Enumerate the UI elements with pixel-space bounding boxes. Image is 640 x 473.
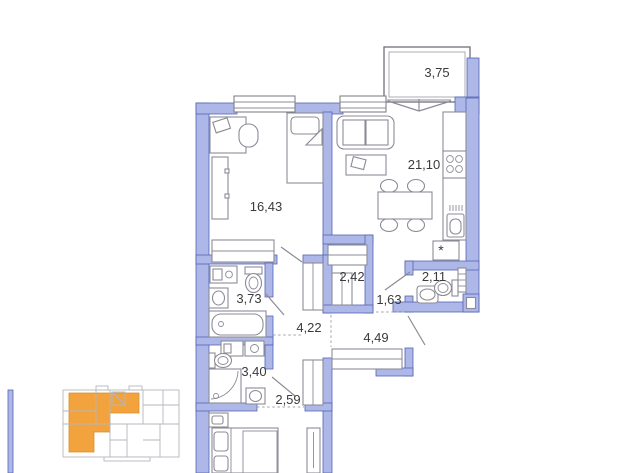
wall-pillar: [463, 294, 479, 312]
entry-wardrobe-icon: [332, 349, 402, 369]
area-label-bathroom: 3,73: [236, 291, 261, 306]
sofa-icon: [337, 116, 394, 149]
fridge-marker: *: [433, 241, 459, 260]
nightstand-icon: [209, 413, 228, 427]
desk-icon: [210, 117, 258, 153]
area-label-balcony: 3,75: [424, 65, 449, 80]
bathroom-door-icon: [266, 294, 284, 315]
kitchen-window-icon: [340, 96, 386, 112]
floorplan-canvas: *: [0, 0, 640, 473]
area-label-passage: 2,59: [275, 392, 300, 407]
hall-wardrobe-icon: [303, 263, 323, 310]
washbasin-icon: [209, 288, 228, 308]
shower-washbasin-icon: [246, 388, 265, 404]
wardrobe-icon: [212, 240, 274, 262]
tv-stand-icon: [346, 155, 386, 175]
building-minimap: [63, 386, 179, 461]
bedroom-window-icon: [234, 96, 295, 112]
towel-rail-icon: [458, 268, 466, 292]
dining-table-icon: [378, 180, 432, 232]
double-bed-icon: [212, 428, 278, 473]
fridge-symbol: *: [438, 242, 444, 258]
passage-wardrobe-icon: [303, 360, 323, 405]
area-label-kitchen: 21,10: [408, 157, 441, 172]
entrance-door-icon: [408, 316, 425, 345]
second-bedroom-furniture: [209, 413, 320, 473]
bathtub-icon: [209, 311, 266, 337]
bedroom-door-icon: [281, 247, 302, 262]
area-label-shower: 3,40: [241, 364, 266, 379]
wc-door-icon: [385, 272, 410, 290]
washing-machine-icon: [210, 266, 237, 283]
area-label-entry: 4,49: [363, 330, 388, 345]
shower-toilet-icon: [209, 353, 232, 368]
shower-cabin-icon: [209, 369, 241, 403]
single-bed-icon: [287, 113, 323, 183]
area-label-wc: 2,11: [422, 269, 446, 284]
toilet-icon: [245, 267, 262, 293]
shelf-icon: [212, 157, 229, 219]
closet-wardrobe-top-icon: [328, 245, 367, 265]
area-label-hallway: 4,22: [296, 320, 321, 335]
area-label-bedroom: 16,43: [250, 199, 283, 214]
shower-sink-icon: [245, 341, 264, 356]
stove-icon: [443, 151, 466, 178]
area-label-corridor: 1,63: [376, 292, 401, 307]
bedroom-furniture: [210, 113, 323, 262]
area-label-closet: 2,42: [339, 269, 364, 284]
bedroom2-wardrobe-icon: [307, 428, 320, 473]
